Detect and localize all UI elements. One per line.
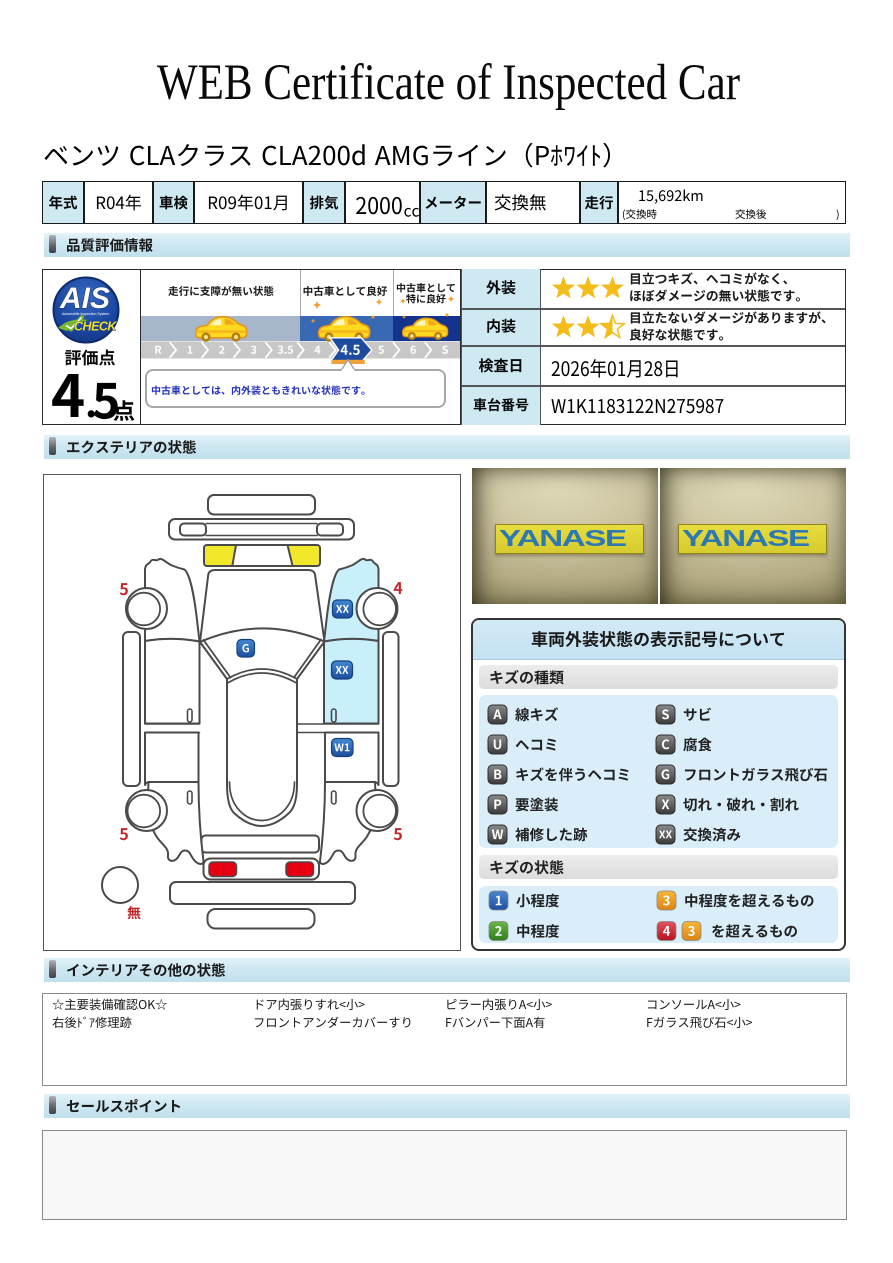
svg-text:Automobile Inspection System.: Automobile Inspection System. — [62, 312, 110, 316]
svg-text:CHECK: CHECK — [74, 320, 117, 334]
svg-text:AIS: AIS — [59, 282, 110, 315]
